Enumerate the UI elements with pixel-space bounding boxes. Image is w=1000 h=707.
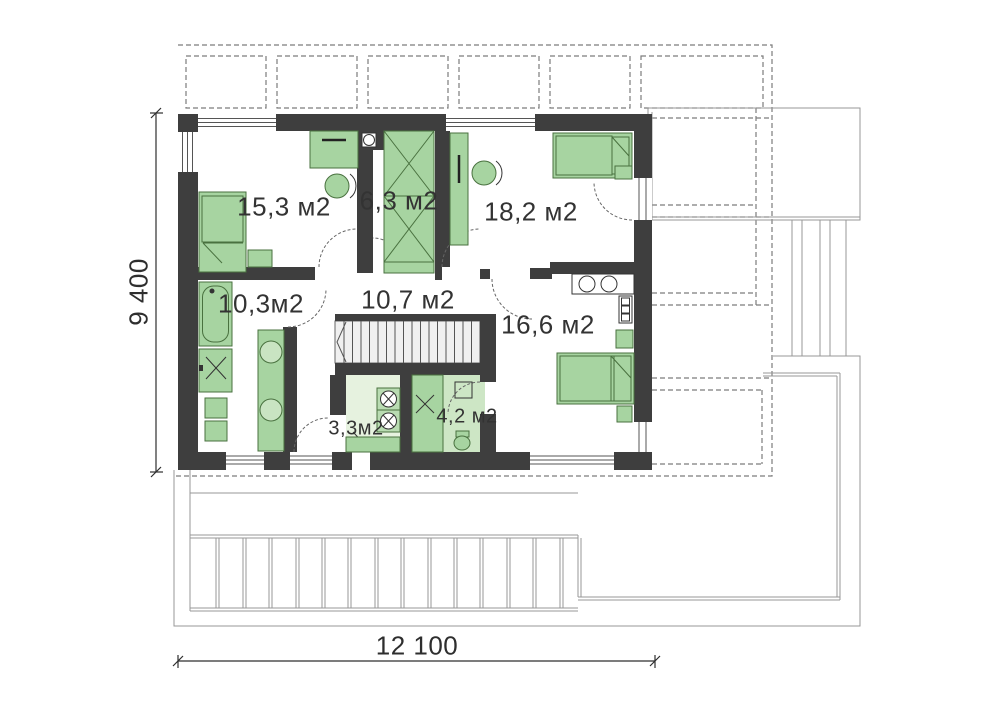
dimension-width-label: 12 100 [376, 631, 459, 662]
room-label-bedroom-2: 18,2 м2 [484, 197, 578, 228]
room-label-ensuite: 4,2 м2 [436, 406, 497, 429]
washer-symbol [377, 388, 400, 410]
room-label-closet: 6,3 м2 [360, 186, 439, 217]
window-top-2 [446, 114, 535, 131]
bed-3-symbol [557, 353, 634, 404]
door-bedroom-1 [319, 229, 357, 267]
wall-bathroom-east [283, 327, 297, 452]
counter-strip [258, 330, 284, 451]
balcony [648, 108, 860, 220]
desk-2-symbol [450, 133, 468, 245]
floor-plan-drawing [0, 0, 1000, 707]
dimension-depth-label: 9 400 [124, 258, 155, 326]
room-label-hall: 10,7 м2 [361, 285, 455, 316]
walkway-planks [792, 220, 846, 356]
sink-symbol [199, 349, 232, 392]
window-bottom-2 [290, 452, 332, 470]
window-top-1 [198, 114, 276, 131]
balcony-door [634, 178, 652, 220]
door-laundry [294, 418, 328, 452]
window-bottom-1 [226, 452, 264, 470]
chair-2-symbol [472, 161, 502, 185]
cabinet-small [616, 330, 633, 348]
room-label-bedroom-3: 16,6 м2 [501, 310, 595, 341]
room-label-bedroom-1: 15,3 м2 [237, 192, 331, 223]
window-left [178, 132, 198, 172]
floor-plan: 15,3 м2 6,3 м2 18,2 м2 10,3м2 10,7 м2 16… [0, 0, 1000, 707]
toilet-symbol [454, 431, 470, 450]
door-balcony-swing [594, 182, 632, 220]
nightstand-2 [615, 166, 632, 179]
vent-shaft [362, 133, 376, 147]
stairs [335, 321, 487, 363]
washbasin-counter [572, 274, 634, 294]
room-label-bathroom: 10,3м2 [218, 289, 304, 320]
nightstand-1 [248, 250, 272, 267]
wall-laundry-ensuite [400, 375, 412, 452]
nightstand-3 [617, 406, 632, 422]
desk-1-symbol [310, 131, 358, 168]
deck-planks [216, 538, 563, 608]
towel-rail [619, 296, 632, 323]
shelf-1 [205, 398, 227, 418]
shelf-2 [205, 421, 227, 441]
window-right [634, 422, 652, 452]
window-bottom-3 [530, 452, 614, 470]
room-label-laundry: 3,3м2 [328, 418, 383, 441]
